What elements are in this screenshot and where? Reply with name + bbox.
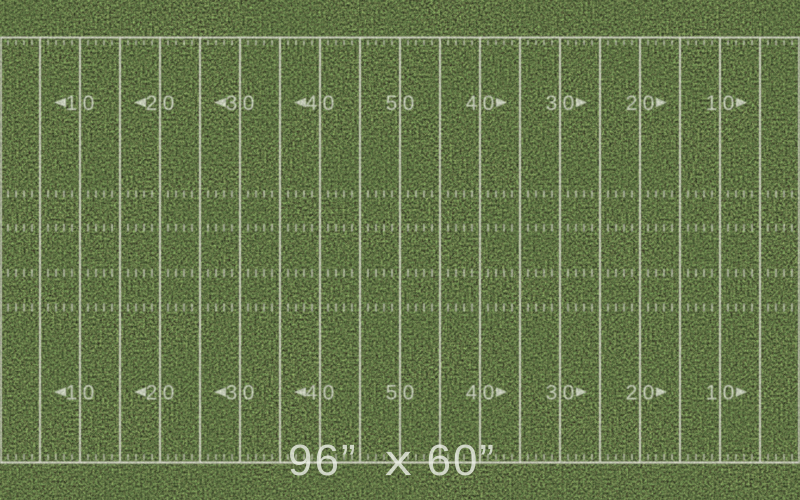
- svg-text:96”: 96”: [288, 436, 358, 485]
- svg-text:x: x: [385, 436, 414, 484]
- svg-text:60”: 60”: [427, 436, 497, 485]
